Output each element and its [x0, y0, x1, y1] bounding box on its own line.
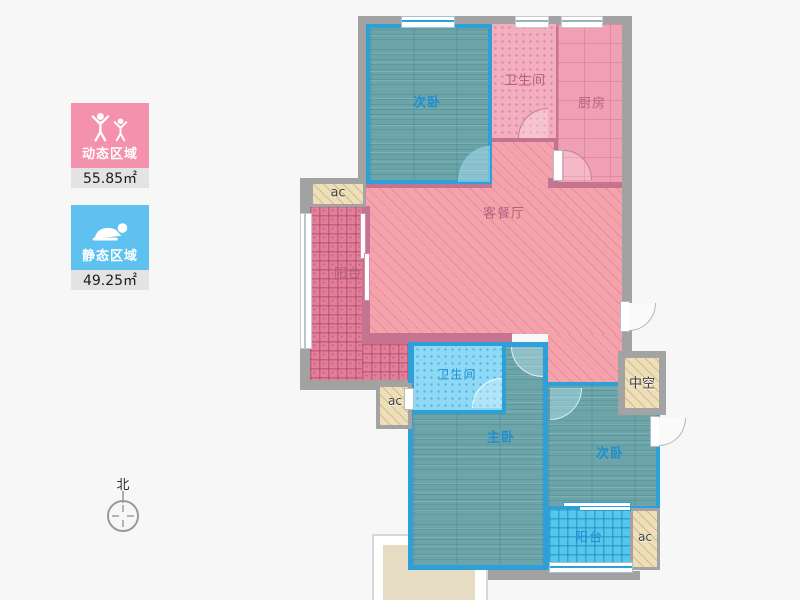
door-panel-entry: [621, 302, 629, 331]
label-void: 中空: [629, 373, 655, 392]
window-bedroom-top: [402, 17, 454, 27]
legend-dynamic-area-card: 动态区域: [71, 103, 149, 168]
sliding-door-balcony-low-a: [564, 503, 630, 506]
label-ac-low: ac: [638, 530, 652, 544]
window-balcony-left: [301, 214, 311, 348]
window-balcony-low: [550, 563, 632, 572]
label-balcony-low: 阳台: [575, 527, 603, 546]
sliding-door-balcony-left-b: [365, 254, 369, 300]
legend-dynamic-area-value: 55.85㎡: [71, 168, 149, 188]
sliding-door-balcony-left-a: [361, 214, 365, 258]
label-bathroom-top: 卫生间: [504, 70, 546, 89]
cheering-people-icon: [87, 111, 133, 143]
label-bathroom-low: 卫生间: [437, 366, 476, 383]
legend-static-area-value: 49.25㎡: [71, 270, 149, 290]
room-balcony-left-ext[interactable]: [362, 344, 410, 380]
label-ac-top: ac: [330, 186, 345, 201]
room-living-dining-entry[interactable]: [548, 334, 622, 382]
label-master-bedroom: 主卧: [487, 427, 515, 446]
label-bedroom-low: 次卧: [596, 443, 624, 462]
label-ac-mid: ac: [388, 394, 402, 408]
room-balcony-left[interactable]: [310, 206, 362, 380]
room-living-dining-hall[interactable]: [490, 140, 556, 188]
window-master-left: [405, 389, 413, 409]
door-panel-bedroom-low-right: [651, 417, 659, 446]
sliding-door-balcony-low-b: [580, 507, 630, 510]
label-bedroom-top: 次卧: [413, 92, 441, 111]
wall-right-upper: [621, 16, 632, 304]
door-panel-kitchen: [554, 151, 562, 180]
window-kitchen: [562, 17, 602, 27]
door-entry: [629, 303, 656, 331]
window-bathroom-top: [516, 17, 548, 27]
wall-balcony-low-bottom: [548, 571, 640, 580]
label-kitchen: 厨房: [578, 93, 606, 112]
door-bedroom-low-right: [659, 418, 686, 446]
label-balcony-left: 阳台: [334, 263, 362, 282]
legend-static-label: 静态区域: [82, 245, 138, 264]
resting-person-icon: [87, 213, 133, 245]
legend-static-area-card: 静态区域: [71, 205, 149, 270]
legend-dynamic-label: 动态区域: [82, 143, 138, 162]
floorplan-canvas: 动态区域 55.85㎡ 静态区域 49.25㎡ 北 北: [0, 0, 800, 600]
label-living-dining: 客餐厅: [483, 203, 525, 222]
